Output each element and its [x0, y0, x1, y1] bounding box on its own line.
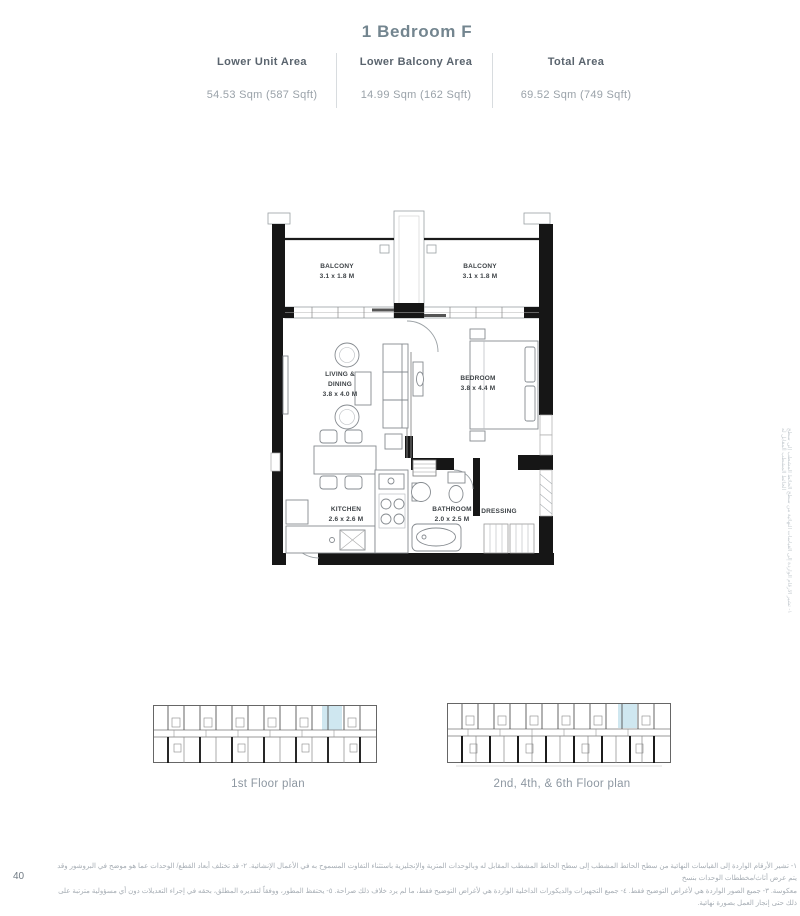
room-dims: 3.8 x 4.0 M: [295, 390, 385, 400]
stat-value: 69.52 Sqm (749 Sqft): [486, 89, 666, 101]
dressing-closets: [484, 524, 534, 553]
room-label-dressing: DRESSING: [454, 507, 544, 517]
room-name: KITCHEN: [301, 505, 391, 515]
room-dims: 3.8 x 4.4 M: [433, 384, 523, 394]
page-number: 40: [13, 871, 24, 882]
living-furniture: [283, 343, 408, 489]
mini-plan-1st-floor: [152, 704, 382, 768]
highlighted-unit: [618, 704, 637, 728]
room-name: LIVING & DINING: [295, 370, 385, 390]
room-label-kitchen: KITCHEN 2.6 x 2.6 M: [301, 505, 391, 525]
room-name: DRESSING: [454, 507, 544, 517]
divider: [336, 53, 337, 108]
ac-closet: [413, 460, 436, 476]
stat-lower-unit-area: Lower Unit Area 54.53 Sqm (587 Sqft): [172, 56, 352, 101]
room-label-living-dining: LIVING & DINING 3.8 x 4.0 M: [295, 370, 385, 399]
stat-total-area: Total Area 69.52 Sqm (749 Sqft): [486, 56, 666, 101]
room-name: BALCONY: [292, 262, 382, 272]
room-dims: 2.6 x 2.6 M: [301, 515, 391, 525]
stat-label: Lower Balcony Area: [326, 56, 506, 68]
side-note: ١- تشير الأرقام الواردة إلى القياسات الن…: [780, 428, 792, 628]
room-label-balcony-left: BALCONY 3.1 x 1.8 M: [292, 262, 382, 282]
caption-1st-floor-plan: 1st Floor plan: [188, 778, 348, 790]
stat-label: Total Area: [486, 56, 666, 68]
mini-plan-upper-floors: [446, 702, 678, 770]
disclaimer-line-2: معكوسة. ٣- جميع الصور الواردة هي لأغراض …: [55, 886, 797, 911]
room-name: BEDROOM: [433, 374, 523, 384]
stat-value: 54.53 Sqm (587 Sqft): [172, 89, 352, 101]
room-name: BALCONY: [435, 262, 525, 272]
page-title: 1 Bedroom F: [34, 22, 800, 42]
disclaimer-line-1: ١- تشير الأرقام الواردة إلى القياسات الن…: [55, 861, 797, 886]
room-dims: 3.1 x 1.8 M: [292, 272, 382, 282]
highlighted-unit: [322, 706, 342, 730]
brochure-page: 1 Bedroom F Lower Unit Area 54.53 Sqm (5…: [0, 0, 800, 916]
stat-label: Lower Unit Area: [172, 56, 352, 68]
disclaimer: ١- تشير الأرقام الواردة إلى القياسات الن…: [55, 861, 797, 910]
caption-upper-floor-plan: 2nd, 4th, & 6th Floor plan: [462, 778, 662, 790]
stat-lower-balcony-area: Lower Balcony Area 14.99 Sqm (162 Sqft): [326, 56, 506, 101]
stat-value: 14.99 Sqm (162 Sqft): [326, 89, 506, 101]
room-dims: 3.1 x 1.8 M: [435, 272, 525, 282]
room-label-bedroom: BEDROOM 3.8 x 4.4 M: [433, 374, 523, 394]
divider: [492, 53, 493, 108]
room-label-balcony-right: BALCONY 3.1 x 1.8 M: [435, 262, 525, 282]
